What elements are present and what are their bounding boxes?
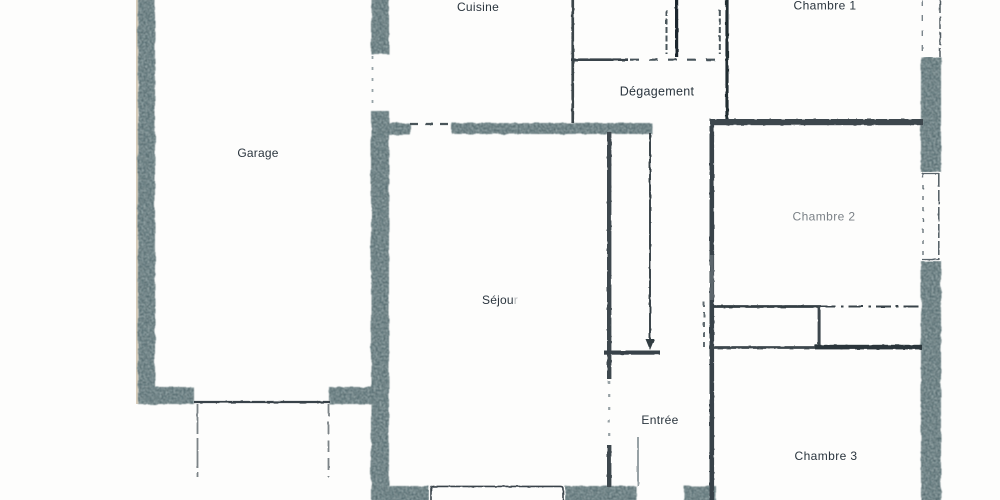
svg-text:Chambre 3: Chambre 3 [795,449,858,463]
svg-text:Chambre 2: Chambre 2 [793,210,856,224]
svg-text:Séjour: Séjour [482,293,518,307]
svg-text:Entrée: Entrée [641,413,678,427]
svg-text:Chambre 1: Chambre 1 [794,0,857,12]
svg-text:Dégagement: Dégagement [620,85,695,99]
svg-text:Cuisine: Cuisine [457,0,499,14]
svg-text:Garage: Garage [237,146,278,160]
